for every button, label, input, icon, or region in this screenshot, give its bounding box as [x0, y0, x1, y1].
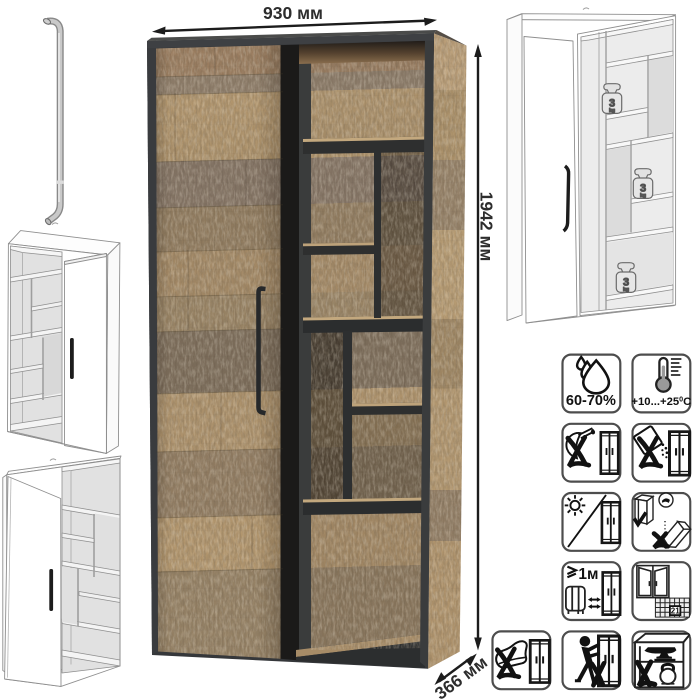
svg-text:1942 мм: 1942 мм [477, 192, 497, 262]
svg-text:1м: 1м [578, 566, 598, 583]
svg-text:60-70%: 60-70% [566, 393, 616, 409]
svg-text:21: 21 [671, 607, 680, 616]
svg-text:930 мм: 930 мм [263, 3, 323, 23]
svg-text:+10...+250C: +10...+250C [631, 395, 691, 409]
